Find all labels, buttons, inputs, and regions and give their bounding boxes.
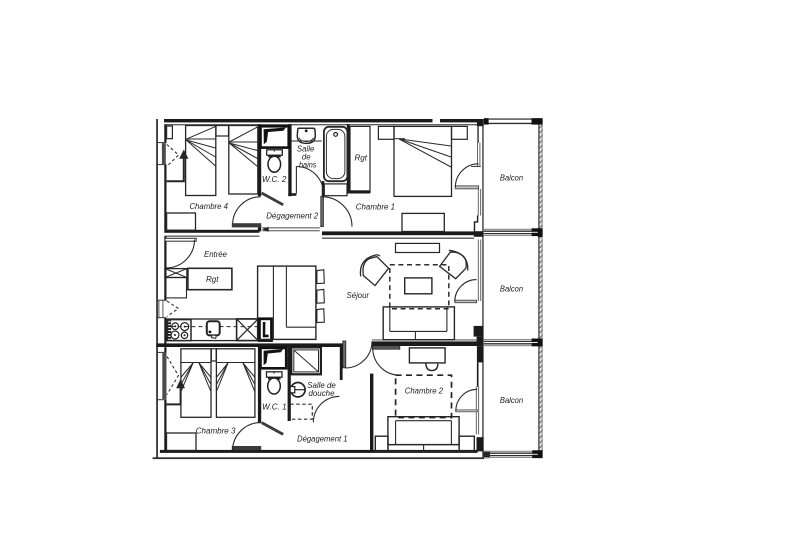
svg-text:Balcon: Balcon: [500, 395, 523, 405]
svg-text:Balcon: Balcon: [500, 284, 523, 294]
svg-text:Chambre 2: Chambre 2: [405, 386, 443, 396]
svg-text:Chambre 4: Chambre 4: [189, 201, 228, 211]
svg-text:Rgt: Rgt: [206, 274, 219, 284]
svg-text:Chambre 3: Chambre 3: [196, 426, 236, 436]
svg-text:bains: bains: [299, 160, 317, 170]
svg-text:W.C. 2: W.C. 2: [262, 174, 287, 184]
svg-text:Balcon: Balcon: [500, 173, 523, 183]
svg-text:Rgt: Rgt: [354, 152, 367, 162]
svg-text:W.C. 1: W.C. 1: [262, 402, 287, 412]
svg-text:Séjour: Séjour: [347, 290, 370, 300]
svg-text:Dégagement 2: Dégagement 2: [266, 211, 318, 221]
svg-text:douche: douche: [309, 388, 335, 398]
svg-text:Dégagement 1: Dégagement 1: [297, 433, 348, 443]
svg-text:Chambre 1: Chambre 1: [356, 202, 395, 212]
svg-text:Entrée: Entrée: [204, 249, 227, 259]
